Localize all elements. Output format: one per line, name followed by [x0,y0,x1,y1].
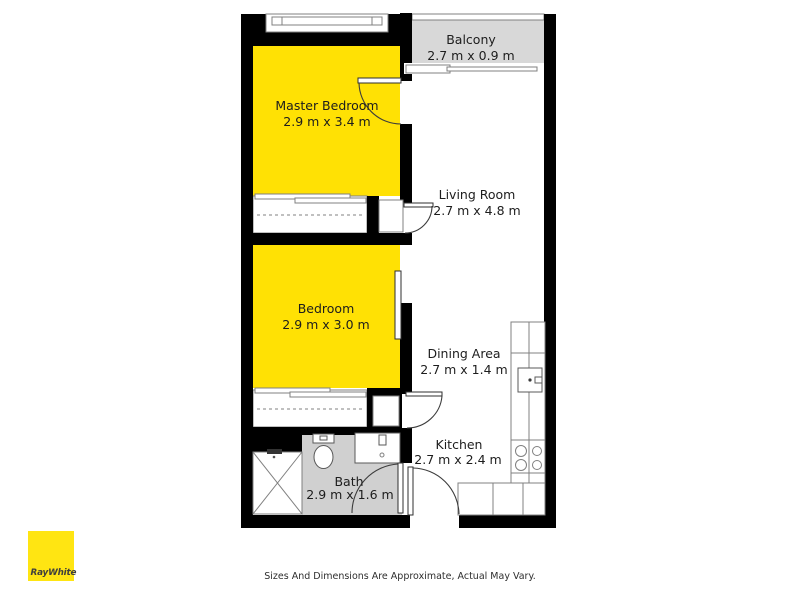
wardrobe-bedroom [253,388,367,427]
room-dimensions: 2.7 m x 2.4 m [414,452,501,467]
room-label-master-bedroom: Master Bedroom 2.9 m x 3.4 m [275,98,378,129]
room-name: Living Room [439,187,516,202]
wall-between-bedrooms [241,233,412,245]
disclaimer-text: Sizes And Dimensions Are Approximate, Ac… [264,571,536,582]
shower-head-icon [267,449,282,454]
room-name: Kitchen [436,437,483,452]
master-door-opening [400,81,412,124]
kitchen-sink [518,368,542,392]
linen-cupboard-upper [379,200,403,232]
wall-bottom [241,515,556,528]
vanity-sink [355,433,400,463]
entry-opening [410,515,459,528]
logo-text: RayWhite [31,568,77,578]
room-dimensions: 2.9 m x 3.0 m [282,317,369,332]
bedroom-sliding-door [395,271,401,339]
room-dimensions: 2.9 m x 1.6 m [306,487,393,502]
room-dimensions: 2.7 m x 4.8 m [433,203,520,218]
room-dimensions: 2.7 m x 1.4 m [420,362,507,377]
fridge-space [511,322,545,485]
balcony-sliding-door [404,63,544,74]
toilet [313,434,334,469]
room-name: Dining Area [427,346,500,361]
linen-cupboard-lower [373,396,399,426]
window [266,14,388,32]
room-label-dining-area: Dining Area 2.7 m x 1.4 m [420,346,507,377]
wardrobe-master [253,194,367,233]
room-label-living-room: Living Room 2.7 m x 4.8 m [433,187,520,218]
shower [253,449,302,514]
room-dimensions: 2.9 m x 3.4 m [283,114,370,129]
floorplan-page: Master Bedroom 2.9 m x 3.4 m Balcony 2.7… [0,0,800,600]
room-name: Balcony [446,32,496,47]
wall-right [544,14,556,528]
room-name: Bedroom [298,301,355,316]
balcony-railing [412,14,544,20]
room-dimensions: 2.7 m x 0.9 m [427,48,514,63]
room-name: Master Bedroom [275,98,378,113]
raywhite-logo: RayWhite [28,531,76,581]
counter-bottom [458,483,545,515]
floorplan-svg: Master Bedroom 2.9 m x 3.4 m Balcony 2.7… [0,0,800,600]
cupboard-door-opening-lower [402,394,412,428]
